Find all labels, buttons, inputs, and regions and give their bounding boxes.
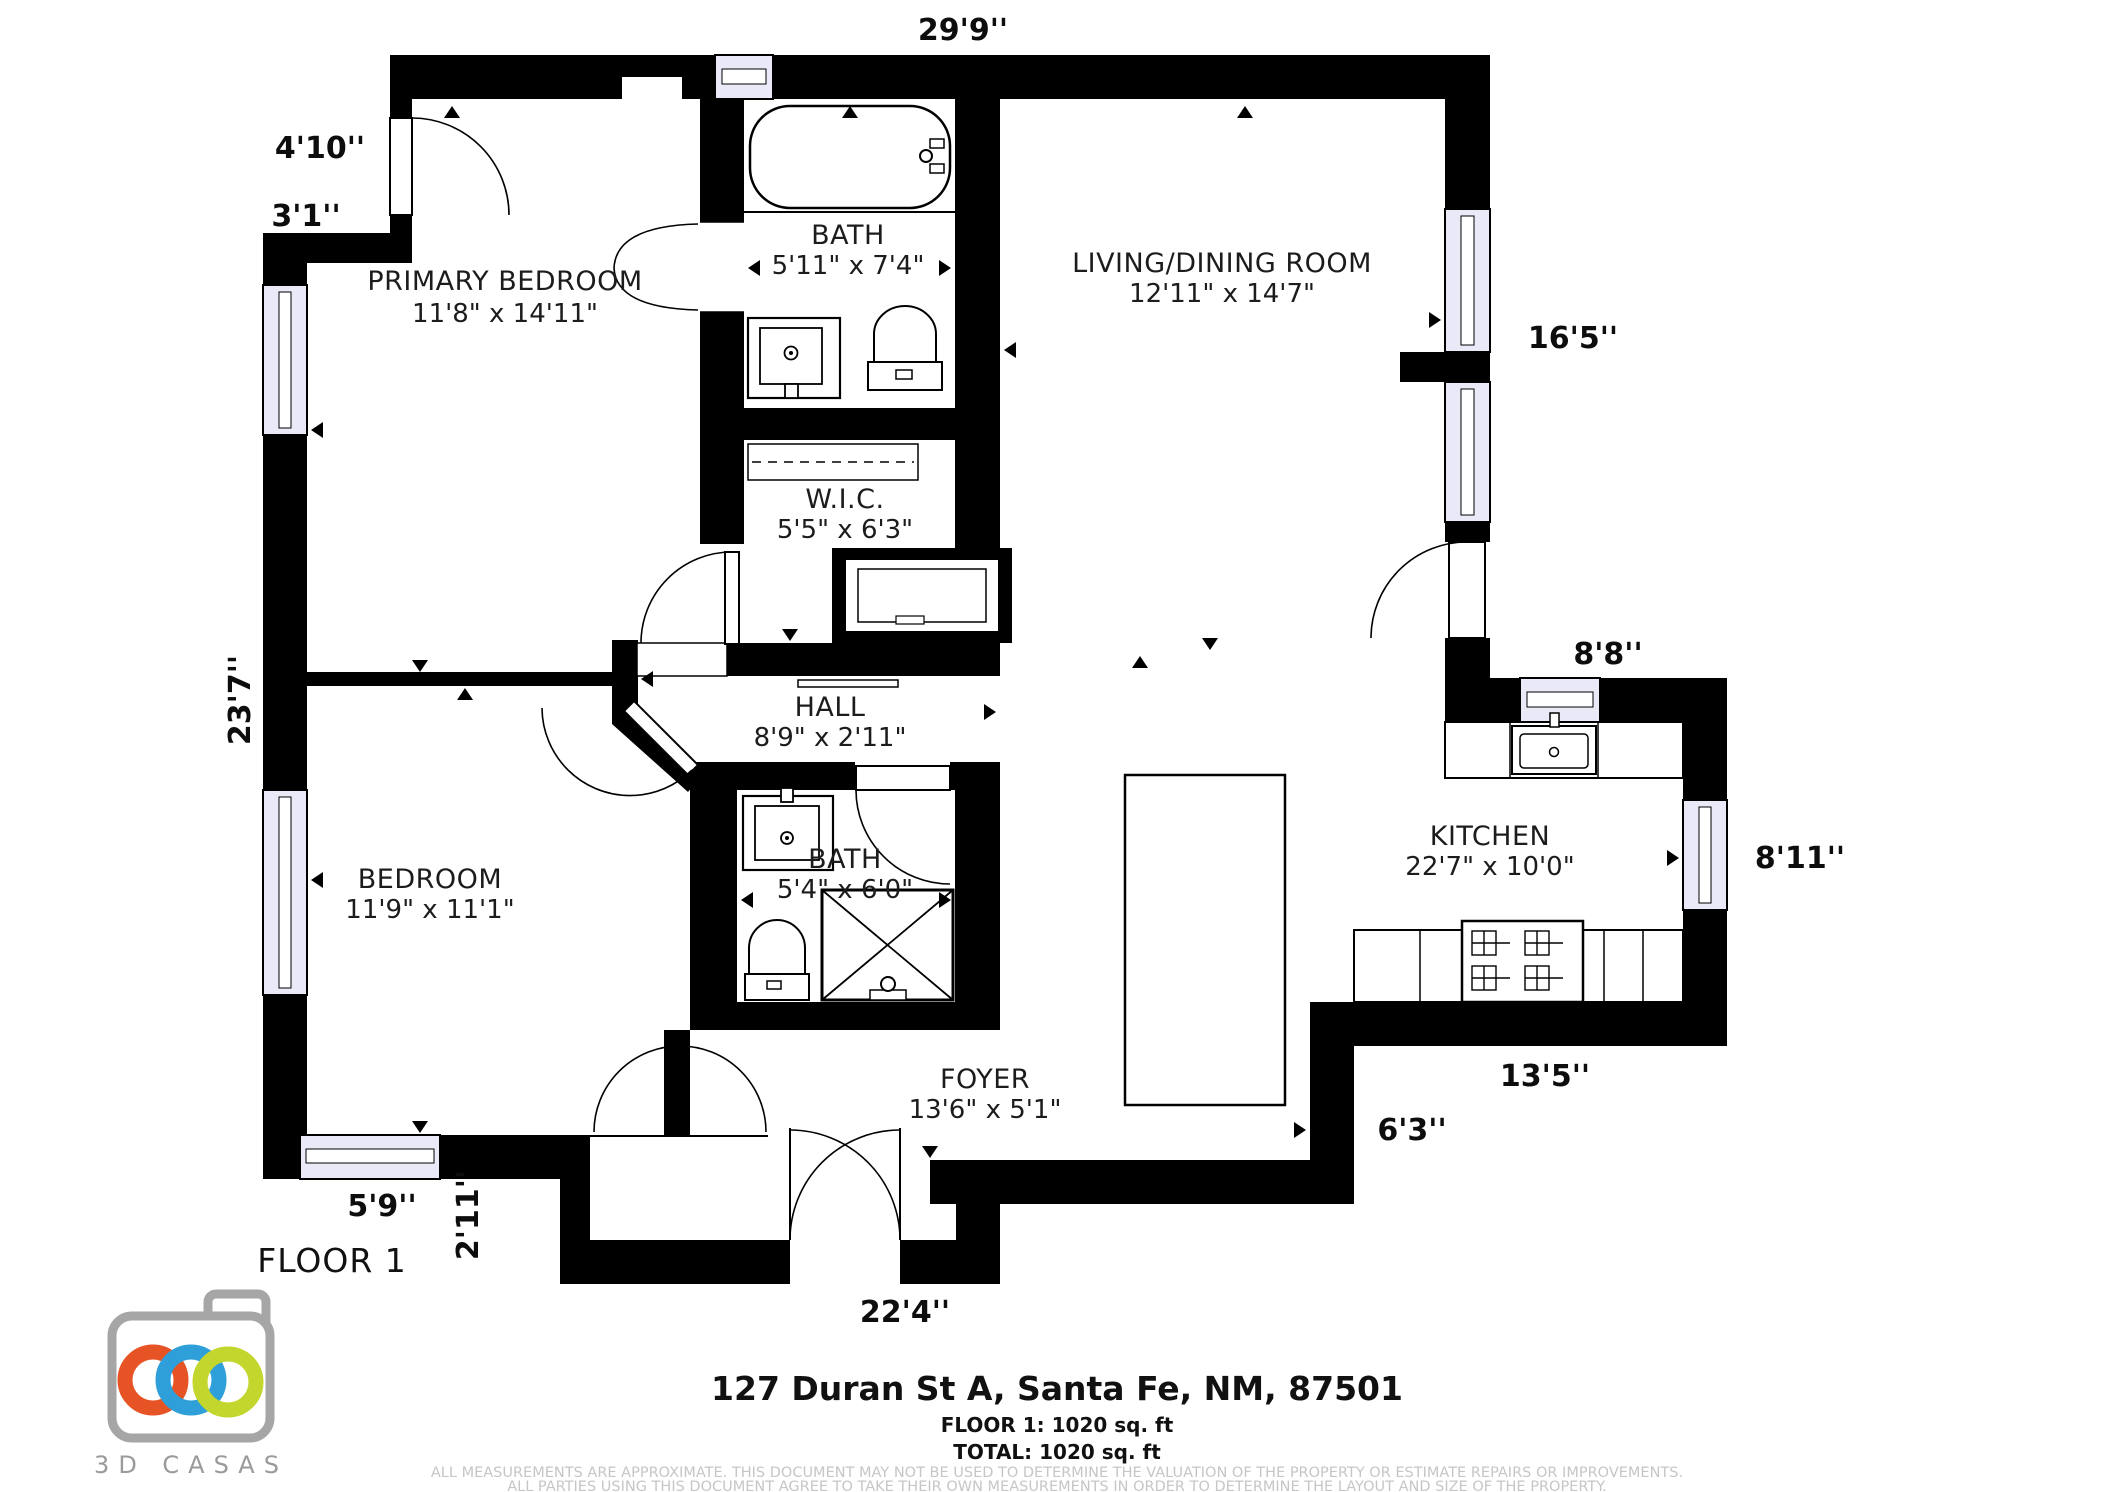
primary-bedroom-door (390, 118, 509, 215)
footer: 127 Duran St A, Santa Fe, NM, 87501 FLOO… (431, 1369, 1683, 1492)
dim-kitchen-bottom: 13'5'' (1500, 1059, 1590, 1094)
dim-top: 29'9'' (918, 13, 1008, 48)
room-size-bath2: 5'4" x 6'0" (777, 875, 913, 905)
bathtub-icon (744, 106, 955, 212)
camera-body-icon (112, 1316, 270, 1438)
disclaimer-line-2: ALL PARTIES USING THIS DOCUMENT AGREE TO… (507, 1479, 1607, 1492)
dim-bedroom-bottom: 5'9'' (347, 1189, 416, 1224)
room-label-kitchen: KITCHEN (1430, 821, 1551, 852)
room-size-bedroom: 11'9" x 11'1" (345, 895, 514, 925)
room-label-wic: W.I.C. (805, 484, 884, 515)
floor-area: FLOOR 1: 1020 sq. ft (941, 1413, 1174, 1437)
room-label-bath2: BATH (808, 844, 882, 875)
wall-niche (622, 77, 682, 99)
floor-label: FLOOR 1 (257, 1241, 407, 1280)
dim-foyer-right: 6'3'' (1377, 1113, 1446, 1148)
bath1-toilet-icon (868, 306, 942, 390)
room-size-hall: 8'9" x 2'11" (754, 723, 907, 753)
washer-dryer-icon (846, 560, 998, 631)
dim-step-wall: 3'1'' (271, 199, 340, 234)
floor-plan: PRIMARY BEDROOM 11'8" x 14'11" BATH 5'11… (0, 0, 2110, 1492)
window-top (715, 55, 773, 99)
dim-bottom: 22'4'' (860, 1295, 950, 1330)
dim-door-wall: 4'10'' (275, 131, 365, 166)
living-kitchen-door (1371, 542, 1485, 638)
room-size-living: 12'11" x 14'7" (1129, 279, 1315, 309)
room-label-hall: HALL (795, 692, 866, 723)
property-address: 127 Duran St A, Santa Fe, NM, 87501 (711, 1369, 1403, 1408)
stove-icon (1462, 921, 1583, 1002)
dim-closet-side: 2'11'' (451, 1170, 486, 1260)
logo: 3D CASAS (94, 1294, 288, 1479)
bath1-sink-icon (748, 318, 840, 398)
window-bedroom-bottom (300, 1135, 440, 1179)
pantry-closet (1125, 775, 1285, 1105)
hall-threshold (798, 680, 898, 687)
window-living-right-2 (1445, 382, 1490, 522)
entry-door (790, 1128, 900, 1240)
hall-primary-door (637, 552, 739, 676)
window-living-right-1 (1445, 209, 1490, 352)
room-label-primary-bedroom: PRIMARY BEDROOM (367, 266, 642, 297)
window-kitchen-top (1520, 678, 1600, 722)
dimension-labels: 29'9'' 4'10'' 3'1'' 23'7'' 16'5'' 8'8'' … (223, 13, 1845, 1330)
logo-text: 3D CASAS (94, 1451, 288, 1479)
room-size-foyer: 13'6" x 5'1" (909, 1095, 1062, 1125)
room-size-bath1: 5'11" x 7'4" (772, 251, 925, 281)
closet-shelf-icon (748, 444, 918, 480)
room-label-living: LIVING/DINING ROOM (1072, 248, 1372, 279)
dim-left: 23'7'' (223, 655, 258, 745)
bath2-toilet-icon (745, 920, 809, 1000)
dim-living-right: 16'5'' (1528, 321, 1618, 356)
room-label-bedroom: BEDROOM (358, 864, 502, 895)
window-kitchen-right (1683, 800, 1727, 910)
floor-plan-page: PRIMARY BEDROOM 11'8" x 14'11" BATH 5'11… (0, 0, 2110, 1492)
room-size-wic: 5'5" x 6'3" (777, 515, 913, 545)
room-label-bath1: BATH (811, 220, 885, 251)
entry-door-gap (790, 1240, 900, 1284)
room-label-foyer: FOYER (940, 1064, 1030, 1095)
dim-kitchen-right: 8'11'' (1755, 841, 1845, 876)
dim-kitchen-top: 8'8'' (1573, 637, 1642, 672)
window-left-upper (263, 285, 307, 435)
window-left-lower (263, 790, 307, 995)
room-size-kitchen: 22'7" x 10'0" (1405, 852, 1574, 882)
total-area: TOTAL: 1020 sq. ft (953, 1440, 1161, 1464)
shower-icon (822, 890, 953, 1000)
room-size-primary-bedroom: 11'8" x 14'11" (412, 299, 598, 329)
